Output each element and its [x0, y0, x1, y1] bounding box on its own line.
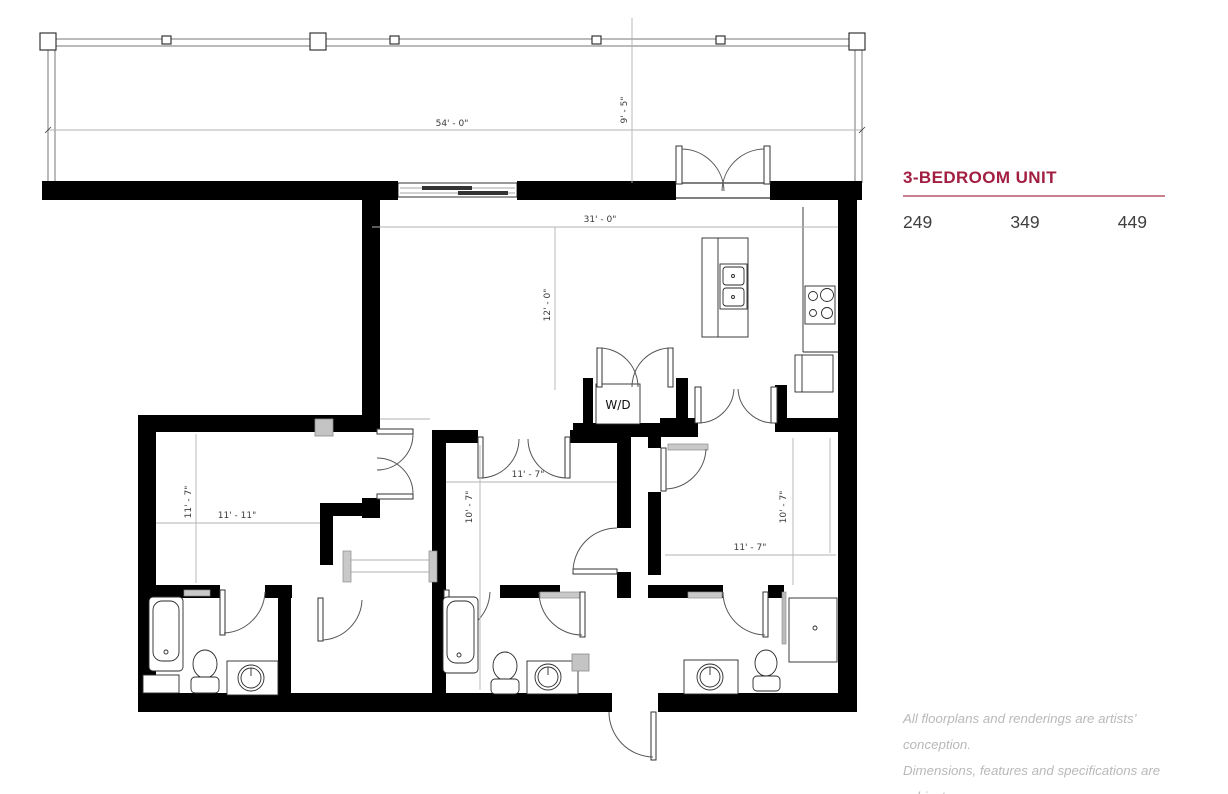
- dim-bed2-depth: 10' - 7": [465, 491, 475, 524]
- dim-bed3-width: 11' - 7": [734, 543, 767, 553]
- unit-number-349: 349: [1010, 212, 1039, 233]
- dim-living-depth: 12' - 0": [543, 289, 553, 322]
- unit-number-449: 449: [1118, 212, 1147, 233]
- unit-number-row: 249 349 449: [903, 212, 1147, 233]
- cooktop: [805, 286, 835, 324]
- bathroom-2: [443, 597, 589, 694]
- dim-balcony-depth: 9' - 5": [620, 96, 630, 123]
- dim-bed2-width: 11' - 7": [512, 470, 545, 480]
- disclaimer-line: All floorplans and renderings are artist…: [903, 706, 1203, 758]
- unit-number-249: 249: [903, 212, 932, 233]
- bathroom-1: [143, 597, 278, 695]
- kitchen: [702, 207, 838, 392]
- floorplan-drawing: W/D: [0, 0, 1228, 794]
- dim-balcony-width: 54' - 0": [436, 119, 469, 129]
- bathroom-3: [684, 592, 837, 694]
- info-panel: 3-BEDROOM UNIT 249 349 449: [903, 168, 1195, 233]
- washer-dryer-label: W/D: [605, 398, 630, 412]
- disclaimer-line: Dimensions, features and specifications …: [903, 758, 1203, 794]
- disclaimer: All floorplans and renderings are artist…: [903, 706, 1203, 794]
- dim-bed1-width: 11' - 11": [218, 511, 257, 521]
- ceiling-fixture: [315, 419, 333, 436]
- balcony-french-door: [676, 146, 770, 198]
- page-title: 3-BEDROOM UNIT: [903, 168, 1195, 188]
- kitchen-island: [702, 238, 748, 337]
- floorplan-page: W/D: [0, 0, 1228, 794]
- refrigerator: [795, 355, 833, 392]
- laundry-closet: W/D: [596, 348, 673, 424]
- dim-bed3-depth: 10' - 7": [779, 491, 789, 524]
- balcony-railing: [40, 33, 865, 183]
- dim-living-width: 31' - 0": [584, 215, 617, 225]
- dim-bed1-depth: 11' - 7": [184, 486, 194, 519]
- sliding-glass-door: [398, 183, 517, 197]
- title-underline: [903, 195, 1165, 197]
- kitchen-counter: [803, 207, 838, 352]
